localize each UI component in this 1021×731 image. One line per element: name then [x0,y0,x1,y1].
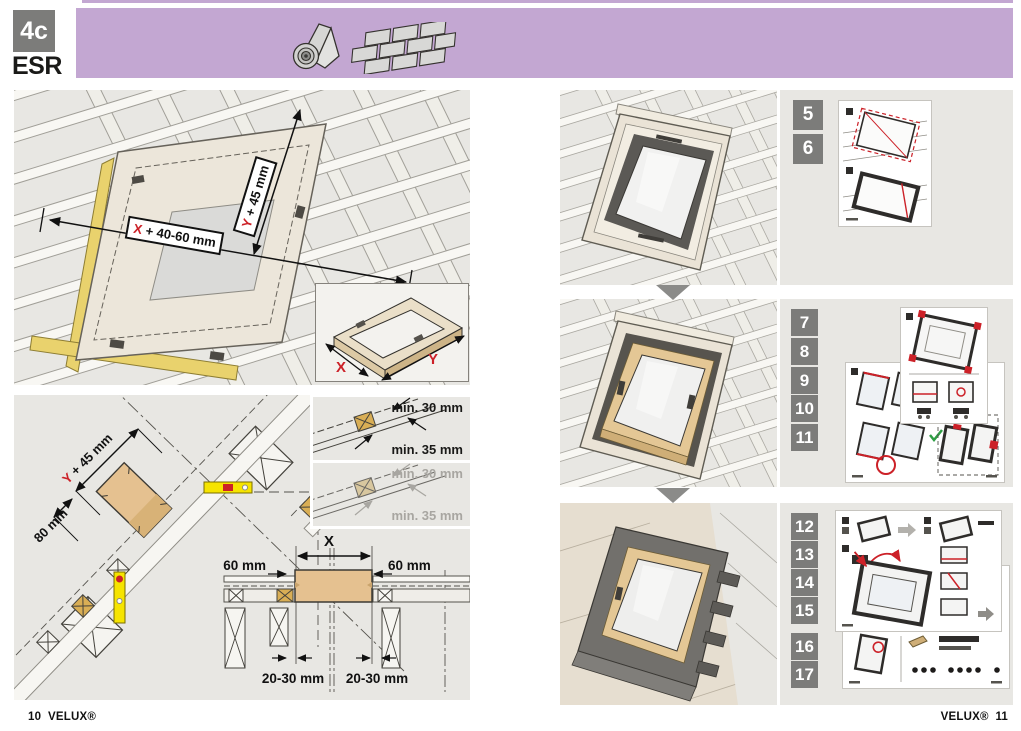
brand-right: VELUX® [941,711,989,723]
min-35-label-gray: min. 35 mm [391,508,463,523]
brand-left: VELUX® [48,711,96,723]
dim-60-left-label: 60 mm [218,558,266,573]
page-number-right: 11 [995,711,1008,723]
step2-drawing-panel [560,299,777,487]
step-badge: 13 [791,541,818,568]
measuring-panel: Y + 45 mm 80 mm min. 30 mm min. 35 mm mi… [14,395,470,700]
step1-reference-panel: 5 6 [780,90,1013,285]
dim-60-right-label: 60 mm [388,558,436,573]
roofing-felt-roll-icon [285,16,347,74]
window-frame-installed-drawing [560,90,777,285]
instruction-card [838,100,932,227]
instruction-card [900,307,988,424]
trimmer-plank [96,463,171,538]
min-clearance-panel-top: min. 30 mm min. 35 mm [313,397,470,460]
product-code: ESR [12,52,62,81]
spirit-level-horizontal [204,482,252,493]
step-badge: 5 [793,100,823,130]
step-badge: 9 [791,367,818,394]
instruction-card [835,510,1002,632]
step1-drawing-panel [560,90,777,285]
step2-reference-panel: 7 8 9 10 11 [780,299,1013,487]
min-30-label-gray: min. 30 mm [391,466,463,481]
step-badge: 12 [791,513,818,540]
header-top-strip [82,0,1013,3]
step3-reference-panel: 12 13 14 15 16 17 [780,503,1013,705]
step-badge: 11 [791,424,818,451]
min-30-label: min. 30 mm [391,400,463,415]
step-code-box: 4c [13,10,55,52]
min-35-label: min. 35 mm [391,442,463,457]
window-sash-installed-drawing [560,299,777,487]
step3-drawing-panel [560,503,777,705]
min-clearance-panel-bottom: min. 30 mm min. 35 mm [313,463,470,526]
step-badge: 14 [791,569,818,596]
header-bar [76,8,1013,78]
window-flashing-installed-drawing [560,503,777,705]
shingles-icon [348,22,460,74]
page-number-left: 10 [28,711,41,723]
spirit-level-vertical [114,572,125,623]
inset-y-label: Y [428,351,438,368]
inset-x-label: X [336,359,346,376]
frame-inset: X Y [315,283,469,382]
frame-inset-diagram: X Y [316,284,468,381]
footer-right: VELUX® 11 [860,711,1008,723]
step-code: 4c [20,17,48,46]
down-arrow-icon [656,488,690,503]
step-badge: 15 [791,597,818,624]
step-badge: 10 [791,395,818,422]
dim-x-cross-label: X [324,533,334,550]
step-badge: 8 [791,338,818,365]
dim-2030-right-label: 20-30 mm [344,671,410,686]
step-badge: 16 [791,633,818,660]
footer-left: 10 VELUX® [28,711,96,723]
step-badge: 17 [791,661,818,688]
step-badge: 6 [793,134,823,164]
manual-page: { "header": { "step_code": "4c", "produc… [0,0,1021,731]
frame-sizing-panel: X + 40-60 mm Y + 45 mm X Y [14,90,470,385]
down-arrow-icon [656,285,690,300]
dim-2030-left-label: 20-30 mm [260,671,326,686]
step-badge: 7 [791,309,818,336]
